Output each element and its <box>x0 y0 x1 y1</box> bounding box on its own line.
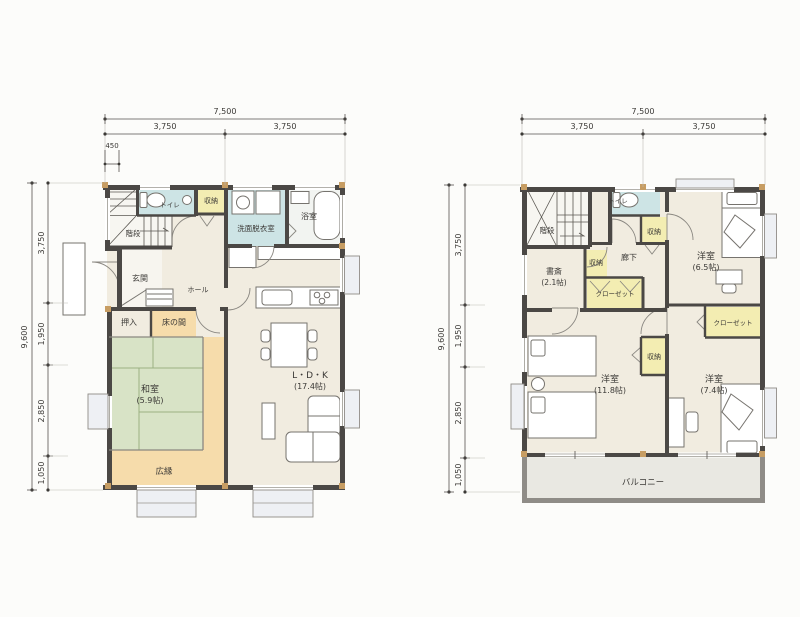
room-stairs-2f <box>525 187 590 247</box>
dim-2f-seg-3: 1,050 <box>454 464 463 487</box>
dining-table <box>271 323 307 367</box>
label-bedroom-se-2f: 洋室 <box>705 373 723 385</box>
living-window <box>253 490 313 517</box>
label-closet-left-2f: クローゼット <box>596 289 635 298</box>
floor-plan-page: 階段 トイレ 収納 洗面脱衣室 浴室 玄関 ホール 押入 床の間 和室 (5.9… <box>0 0 800 617</box>
label-toilet-2f: トイレ <box>608 197 628 205</box>
dim-1f-seg-0: 3,750 <box>37 232 46 255</box>
label-stairs-1f: 階段 <box>126 228 141 238</box>
chair <box>308 330 317 342</box>
window-bump-right <box>765 214 777 258</box>
label-entrance-1f: 玄関 <box>132 273 148 283</box>
window-bump-top <box>676 179 734 188</box>
label-storage-hall-2f: 収納 <box>647 227 661 236</box>
chair <box>686 412 698 432</box>
pillow <box>531 397 545 413</box>
floor-plan-drawing: 階段 トイレ 収納 洗面脱衣室 浴室 玄関 ホール 押入 床の間 和室 (5.9… <box>0 0 800 617</box>
shoe-cabinet <box>146 289 173 306</box>
tv-board <box>262 403 275 439</box>
chair <box>261 330 270 342</box>
dim-1f-offset: 450 <box>105 142 118 150</box>
shutter-box <box>511 384 524 429</box>
label-hallway-2f: 廊下 <box>621 252 637 262</box>
label-bedroom-se-size-2f: (7.4帖) <box>701 385 728 395</box>
dim-1f-seg-2: 2,850 <box>37 400 46 423</box>
desk-se <box>668 398 684 447</box>
label-ldk-1f: L・D・K <box>292 371 329 381</box>
label-ldk-size-1f: (17.4帖) <box>294 381 326 391</box>
dim-2f-seg-1: 1,950 <box>454 325 463 348</box>
dim-1f-top-left: 3,750 <box>154 122 177 131</box>
label-washitsu-size-1f: (5.9帖) <box>137 395 164 405</box>
label-bedroom-ne-size-2f: (6.5帖) <box>693 262 720 272</box>
dim-2f-top-right: 3,750 <box>693 122 716 131</box>
dim-1f-seg-3: 1,050 <box>37 462 46 485</box>
label-study-size-2f: (2.1帖) <box>541 277 566 287</box>
label-bath-1f: 浴室 <box>301 211 317 221</box>
toilet-tank-1f <box>140 193 147 208</box>
label-stairs-2f: 階段 <box>540 225 555 235</box>
dim-2f-seg-0: 3,750 <box>454 234 463 257</box>
label-closet-right-2f: クローゼット <box>714 318 753 327</box>
label-hall-1f: ホール <box>188 286 209 294</box>
washing-machine <box>232 191 254 214</box>
night-table <box>532 378 545 391</box>
refrigerator <box>229 247 256 268</box>
bath-counter <box>291 192 309 204</box>
porch <box>63 243 85 315</box>
shutter-box <box>88 394 108 429</box>
vanity-unit <box>256 191 280 214</box>
chair <box>261 348 270 360</box>
label-veranda-1f: 広縁 <box>155 466 173 477</box>
bathtub <box>314 192 340 240</box>
pillow <box>727 441 757 453</box>
veranda-window <box>137 490 196 517</box>
dim-1f-left-total: 9,600 <box>20 326 29 349</box>
chair <box>308 348 317 360</box>
label-bedroom-sw-size-2f: (11.8帖) <box>594 385 626 395</box>
label-washroom-1f: 洗面脱衣室 <box>237 223 275 233</box>
label-study-2f: 書斎 <box>546 266 562 276</box>
label-bedroom-ne-2f: 洋室 <box>697 250 715 262</box>
chair <box>722 284 736 293</box>
label-balcony-2f: バルコニー <box>622 478 664 488</box>
label-washitsu-1f: 和室 <box>141 383 159 395</box>
dim-1f-top-total: 7,500 <box>214 107 237 116</box>
dim-2f-seg-2: 2,850 <box>454 402 463 425</box>
pillow <box>531 340 545 356</box>
desk-ne <box>716 270 742 284</box>
label-toilet-1f: トイレ <box>160 201 180 209</box>
bay-window <box>345 256 360 294</box>
pillow <box>727 193 757 205</box>
dim-1f-top-right: 3,750 <box>274 122 297 131</box>
dim-2f-left-total: 9,600 <box>437 328 446 351</box>
label-storage-center-2f: 収納 <box>647 352 661 361</box>
window-bump-right <box>765 388 777 438</box>
label-storage-study-2f: 収納 <box>589 258 603 267</box>
label-tokonoma-1f: 床の間 <box>162 317 186 327</box>
bay-window <box>345 390 360 428</box>
dim-2f-top-total: 7,500 <box>632 107 655 116</box>
label-oshiire-1f: 押入 <box>121 317 137 327</box>
dim-2f-top-left: 3,750 <box>571 122 594 131</box>
dim-1f-seg-1: 1,950 <box>37 323 46 346</box>
label-bedroom-sw-2f: 洋室 <box>601 373 619 385</box>
label-storage-1f: 収納 <box>204 196 218 205</box>
hand-basin-1f <box>183 196 192 205</box>
